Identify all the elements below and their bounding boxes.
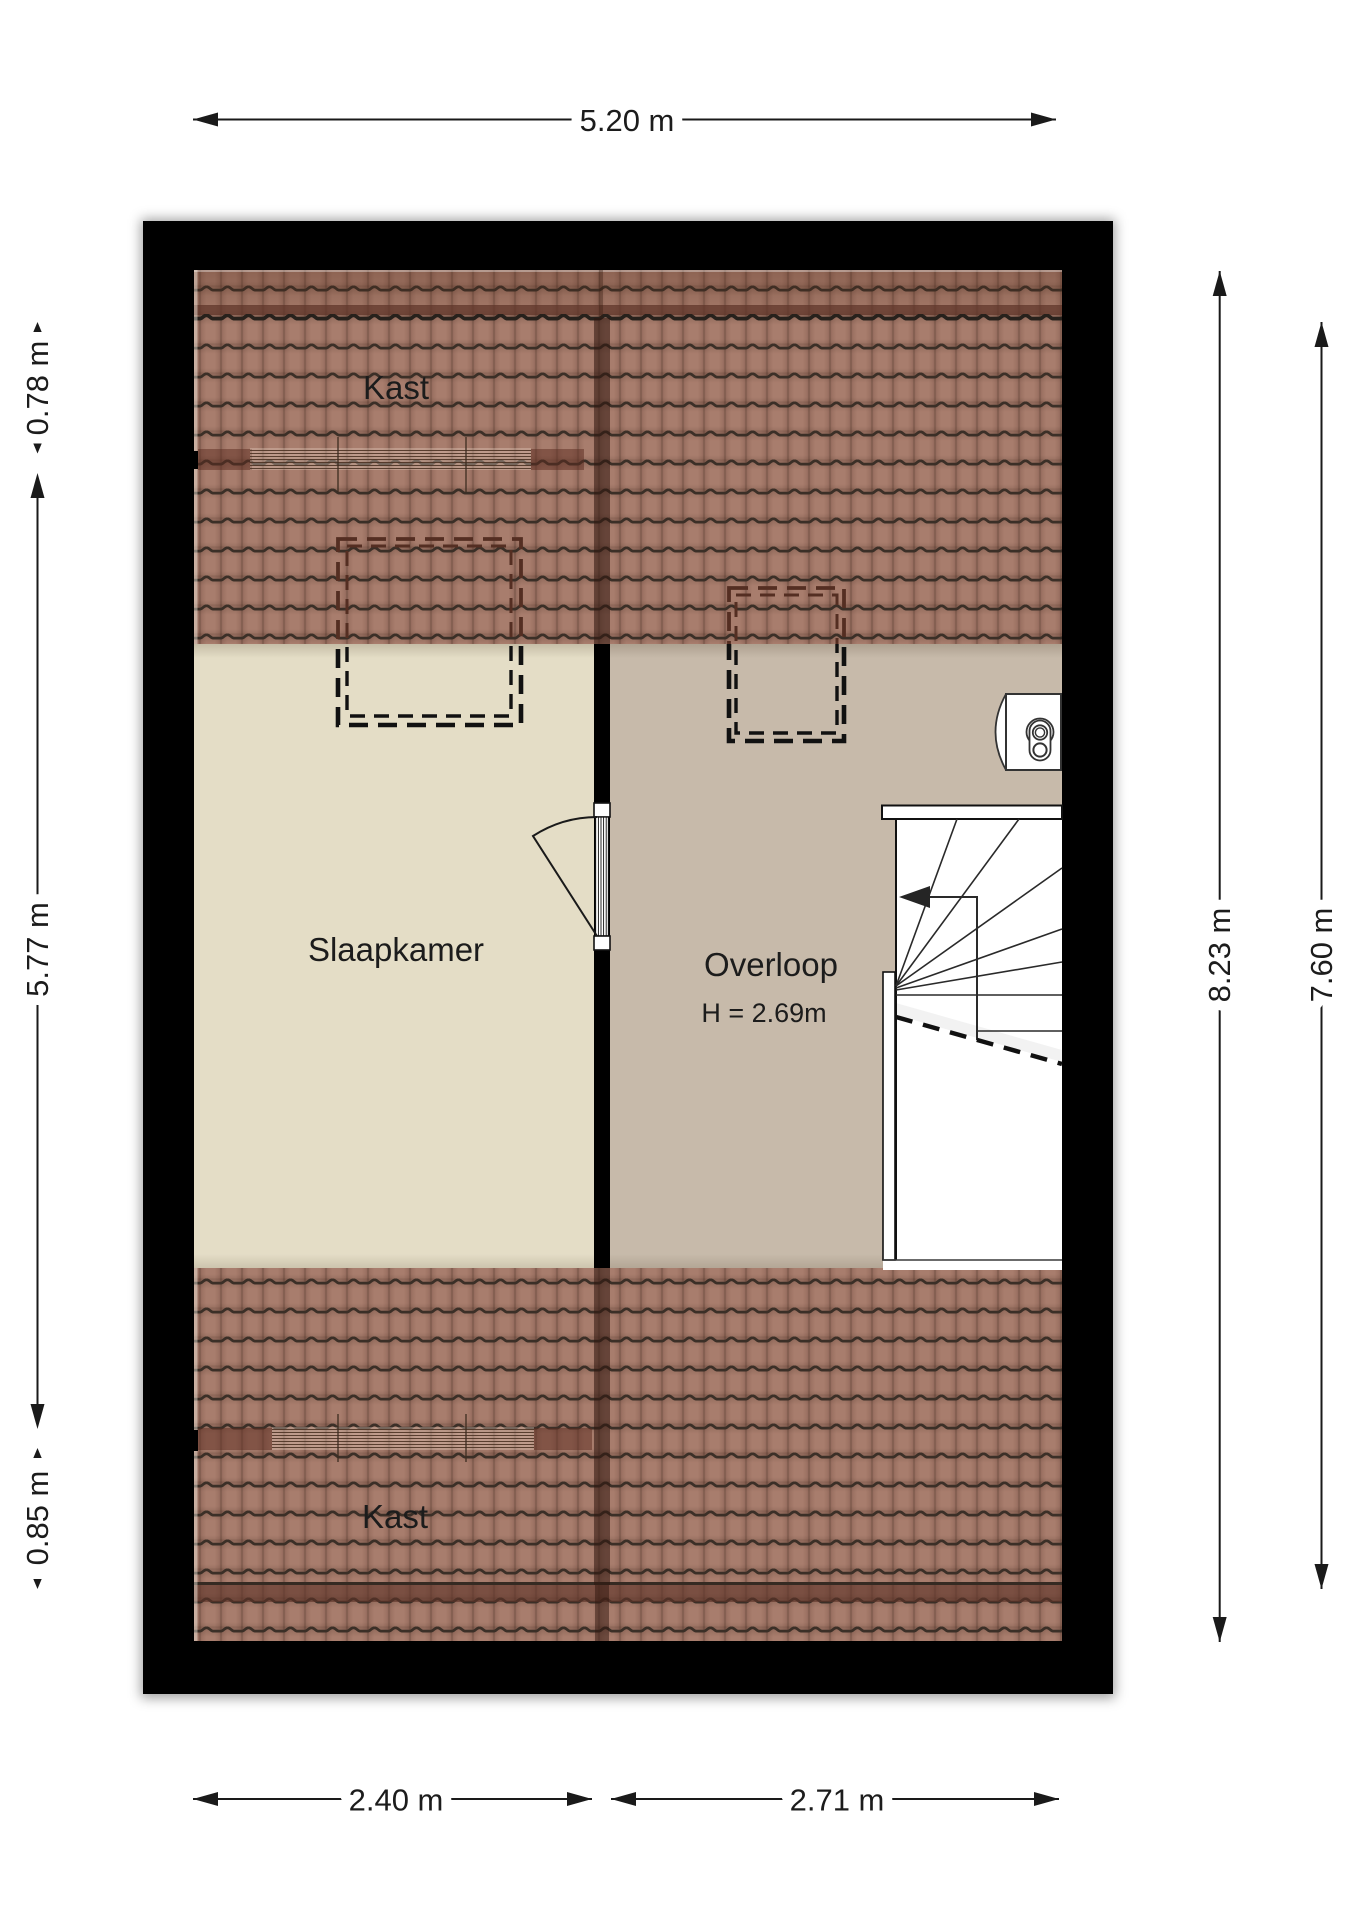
svg-text:8.23 m: 8.23 m xyxy=(1202,908,1237,1003)
svg-text:Kast: Kast xyxy=(363,369,429,406)
svg-text:Overloop: Overloop xyxy=(704,946,838,983)
svg-text:7.60 m: 7.60 m xyxy=(1304,908,1339,1003)
svg-text:0.85 m: 0.85 m xyxy=(20,1471,55,1566)
svg-text:5.77 m: 5.77 m xyxy=(20,902,55,997)
svg-text:2.40 m: 2.40 m xyxy=(349,1783,444,1818)
svg-text:2.71 m: 2.71 m xyxy=(790,1783,885,1818)
svg-text:0.78 m: 0.78 m xyxy=(20,341,55,436)
svg-text:Slaapkamer: Slaapkamer xyxy=(308,931,484,968)
svg-text:Kast: Kast xyxy=(362,1498,428,1535)
svg-text:5.20 m: 5.20 m xyxy=(580,103,675,138)
svg-text:H = 2.69m: H = 2.69m xyxy=(701,998,826,1028)
